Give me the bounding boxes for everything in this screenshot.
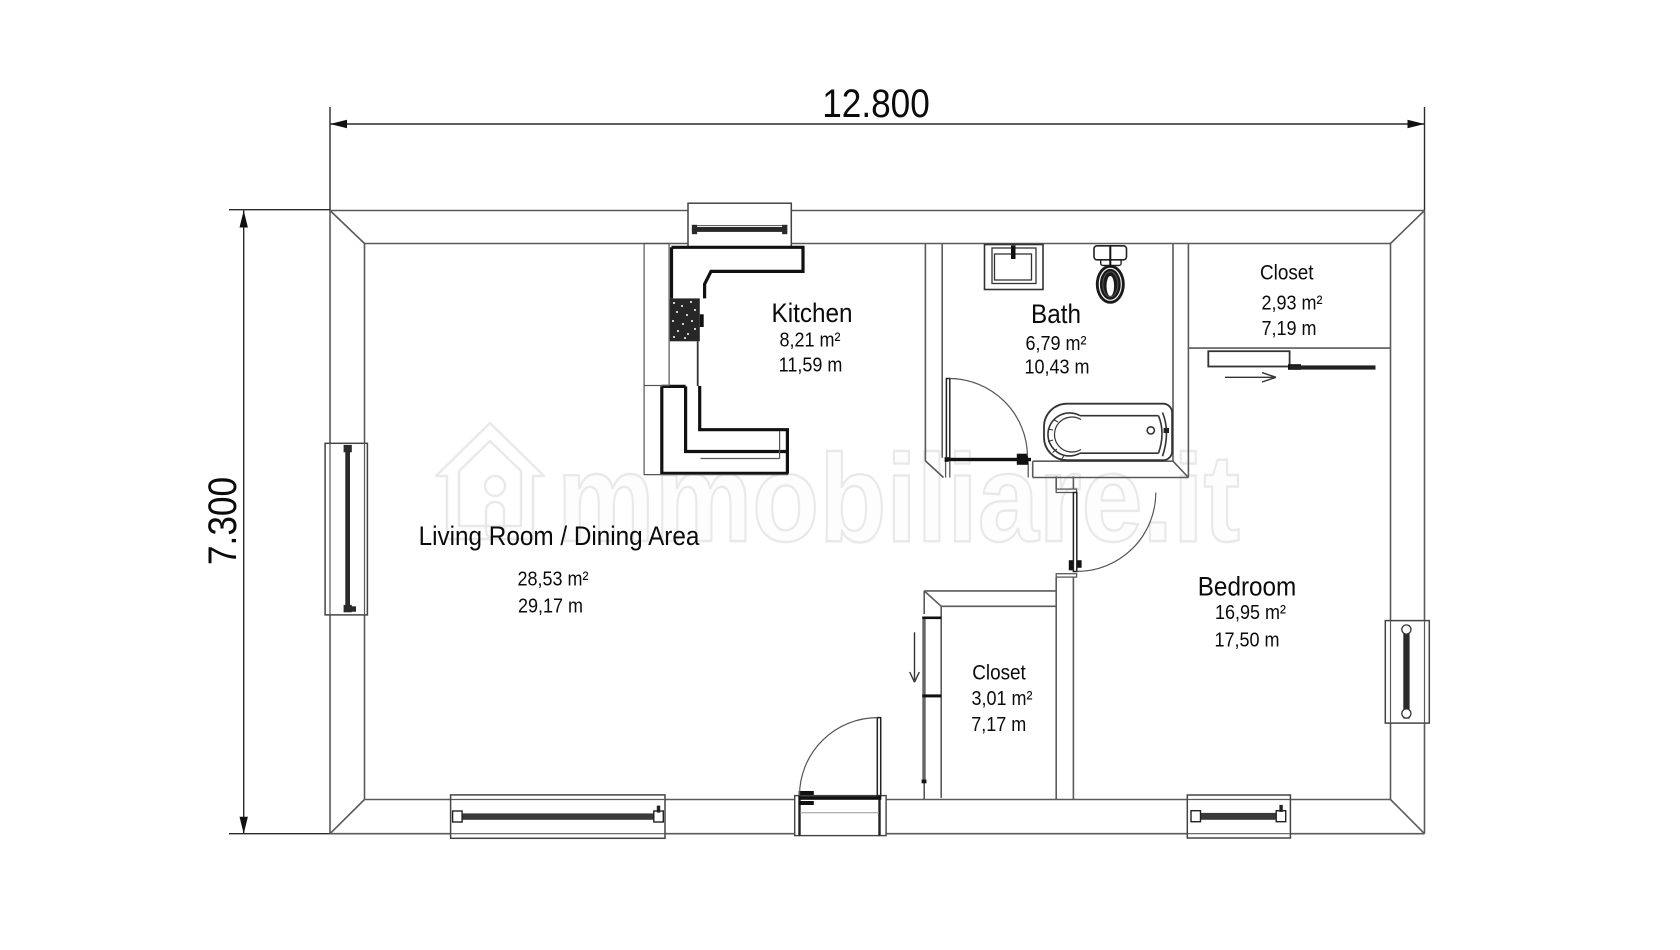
svg-text:16,95 m²: 16,95 m² — [1215, 602, 1286, 624]
svg-text:3,01 m²: 3,01 m² — [972, 688, 1033, 710]
svg-text:2,93 m²: 2,93 m² — [1262, 292, 1323, 314]
svg-text:7,17 m: 7,17 m — [971, 714, 1026, 736]
svg-text:Closet: Closet — [1260, 262, 1314, 285]
svg-text:Living Room / Dining Area: Living Room / Dining Area — [419, 522, 700, 551]
svg-text:11,59 m: 11,59 m — [779, 355, 843, 377]
svg-text:Bath: Bath — [1031, 300, 1081, 329]
svg-text:12.800: 12.800 — [822, 81, 930, 126]
svg-text:10,43 m: 10,43 m — [1024, 357, 1089, 379]
svg-text:7,19 m: 7,19 m — [1262, 318, 1317, 340]
svg-text:29,17 m: 29,17 m — [518, 595, 583, 617]
svg-text:6,79 m²: 6,79 m² — [1026, 333, 1087, 355]
svg-text:Closet: Closet — [972, 662, 1026, 685]
svg-text:8,21 m²: 8,21 m² — [780, 330, 841, 352]
svg-text:Kitchen: Kitchen — [771, 299, 852, 328]
svg-text:7.300: 7.300 — [200, 477, 245, 565]
svg-text:Bedroom: Bedroom — [1198, 572, 1297, 601]
svg-text:28,53 m²: 28,53 m² — [518, 569, 589, 591]
svg-text:17,50 m: 17,50 m — [1214, 630, 1279, 652]
